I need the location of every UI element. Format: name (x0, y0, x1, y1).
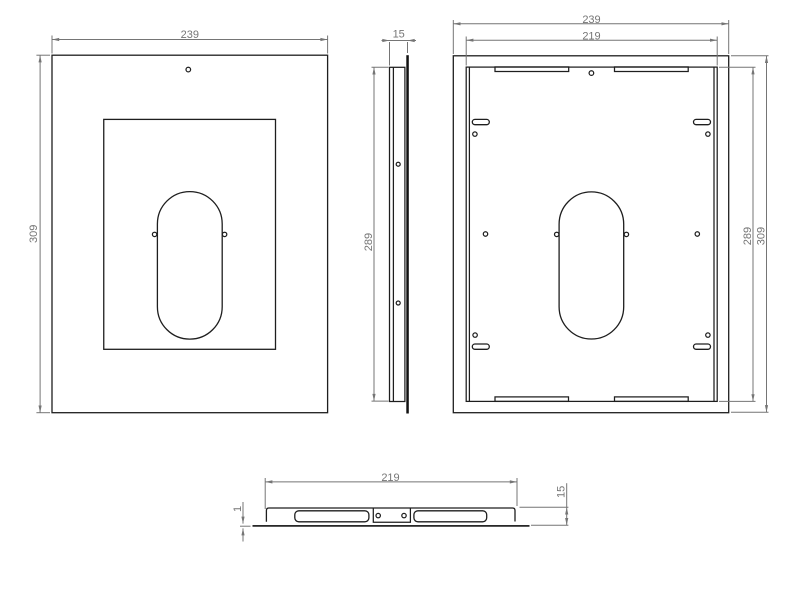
svg-text:239: 239 (582, 14, 600, 26)
svg-text:289: 289 (742, 227, 754, 245)
svg-text:309: 309 (28, 225, 40, 243)
svg-text:289: 289 (363, 233, 375, 251)
svg-text:219: 219 (381, 472, 399, 484)
svg-text:15: 15 (555, 486, 567, 498)
svg-text:15: 15 (393, 29, 405, 41)
svg-text:309: 309 (755, 227, 767, 245)
svg-text:1: 1 (232, 506, 244, 512)
svg-text:239: 239 (181, 29, 199, 41)
svg-text:219: 219 (582, 31, 600, 43)
